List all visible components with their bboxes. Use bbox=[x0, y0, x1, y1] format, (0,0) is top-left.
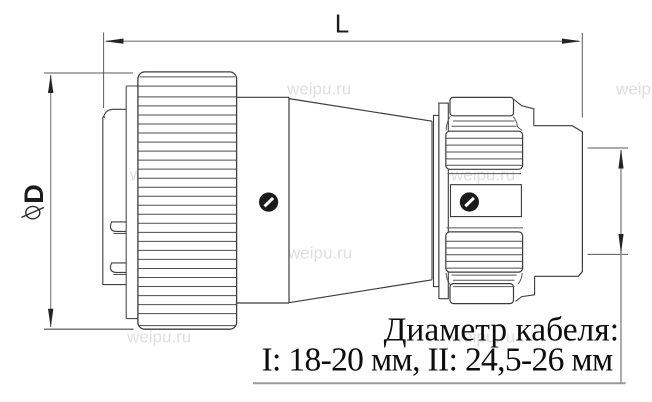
svg-text:L: L bbox=[335, 9, 349, 39]
svg-text:D: D bbox=[19, 184, 49, 204]
svg-text:weipu.ru: weipu.ru bbox=[287, 244, 352, 263]
svg-text:weipu.ru: weipu.ru bbox=[126, 328, 191, 347]
svg-text:I: 18-20 мм, II: 24,5-26 мм: I: 18-20 мм, II: 24,5-26 мм bbox=[261, 341, 612, 378]
svg-text:weipu.ru: weipu.ru bbox=[615, 80, 652, 99]
svg-text:weipu.ru: weipu.ru bbox=[286, 80, 351, 99]
